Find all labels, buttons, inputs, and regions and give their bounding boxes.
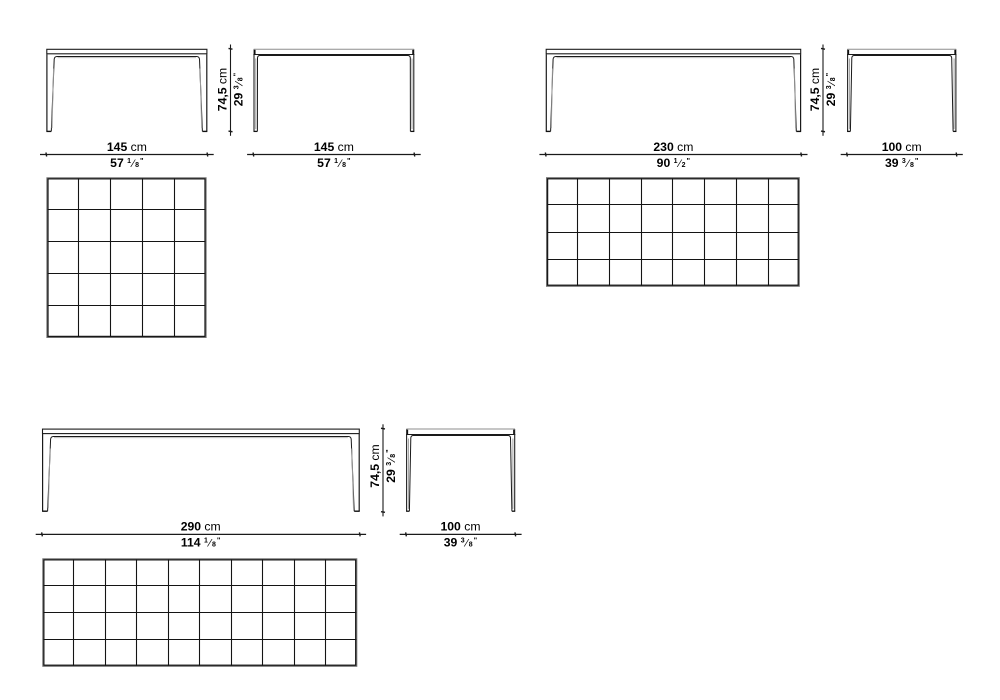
svg-text:74,5 cm: 74,5 cm — [215, 68, 229, 111]
svg-text:230 cm: 230 cm — [653, 140, 693, 154]
svg-text:100 cm: 100 cm — [882, 140, 922, 154]
svg-text:74,5 cm: 74,5 cm — [368, 444, 382, 487]
svg-text:145 cm: 145 cm — [107, 140, 147, 154]
svg-text:145 cm: 145 cm — [314, 140, 354, 154]
svg-text:100 cm: 100 cm — [441, 519, 481, 533]
svg-text:74,5 cm: 74,5 cm — [808, 68, 822, 111]
svg-text:290 cm: 290 cm — [181, 519, 221, 533]
